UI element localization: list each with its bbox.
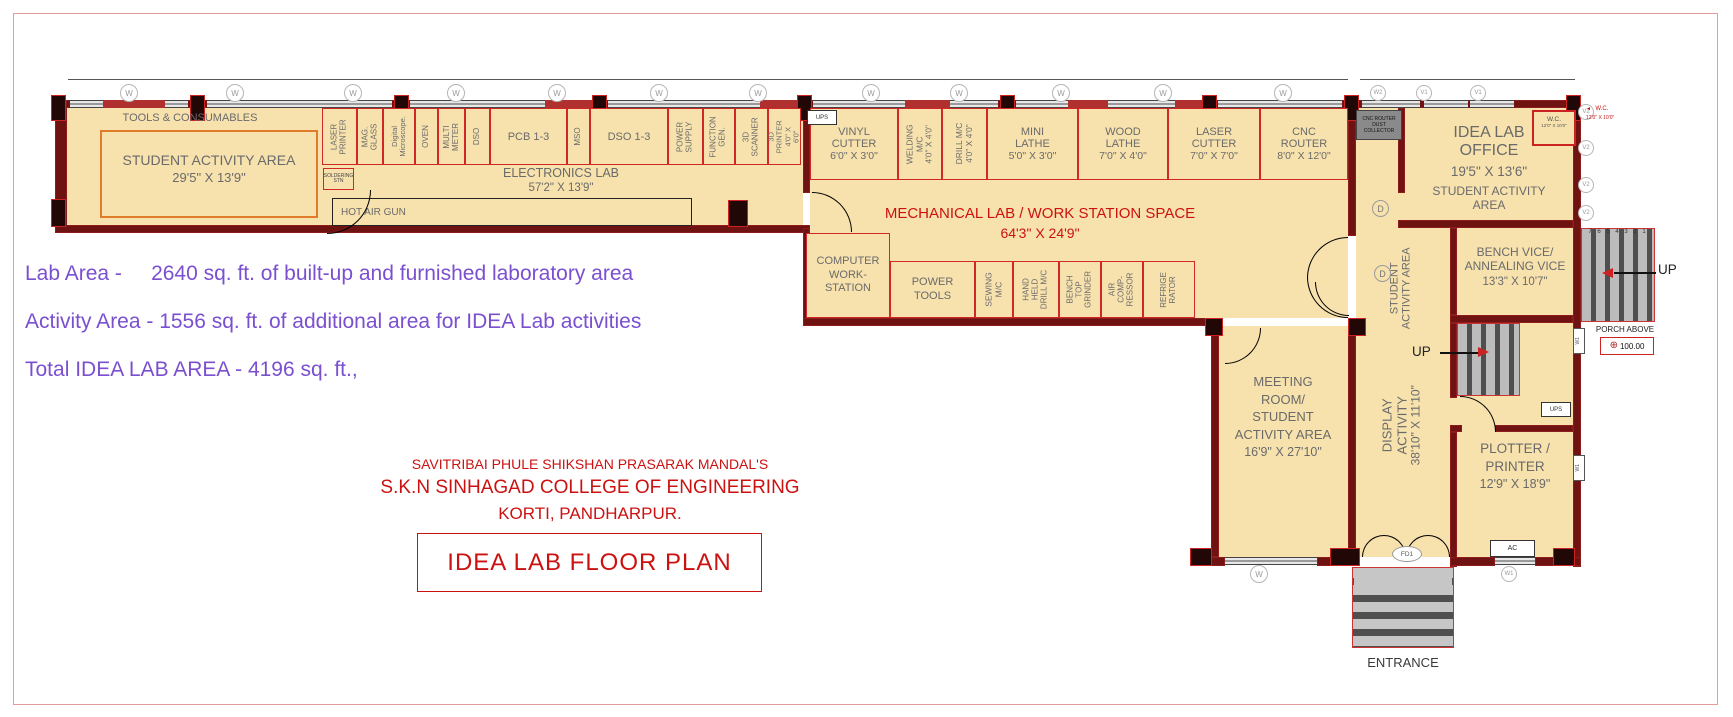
equip-wood-lathe: WOOD LATHE7'0" X 4'0" (1078, 108, 1168, 180)
mechanical-lab-label: MECHANICAL LAB / WORK STATION SPACE 64'3… (845, 205, 1235, 241)
level-compass-icon: ⊕ (1610, 341, 1618, 351)
fd1-door-label: FD1 (1392, 546, 1422, 562)
window-marker: W (120, 84, 138, 102)
porch-above-label: PORCH ABOVE (1586, 325, 1664, 334)
up-arrow-line (1440, 352, 1482, 354)
college-name: S.K.N SINHAGAD COLLEGE OF ENGINEERING (330, 477, 850, 499)
wall-mech-right (1348, 108, 1356, 236)
wc-room: W.C. 12'0" X 10'0" (1532, 110, 1576, 146)
equip-air-compressor: AIR COMP- RESSOR (1101, 261, 1143, 318)
window-sill-bottom-right (1495, 557, 1535, 565)
wall-corridor-right-1 (1450, 228, 1457, 315)
ventilator-marker-v2: V2 (1578, 177, 1594, 193)
ventilator-marker-v1: V1 (1416, 85, 1432, 101)
window-band-line-right (1360, 79, 1575, 80)
soldering-station: SOLDERING STN (323, 168, 354, 190)
door-pillar (51, 199, 66, 227)
up-arrow-icon (1478, 347, 1489, 357)
equip-power-tools: POWER TOOLS (890, 261, 975, 318)
equip-dso: DSO (465, 108, 490, 165)
equip-laser-printer: LASER PRINTER (322, 108, 357, 165)
window-marker: W (1250, 565, 1268, 583)
door-marker-d: D (1372, 200, 1389, 217)
equip-pcb: PCB 1-3 (490, 108, 567, 165)
cnc-dust-collector: CNC ROUTER DUST COLLECTOR (1356, 110, 1402, 140)
upper-stairs (1581, 228, 1655, 322)
equip-cnc-router: CNC ROUTER8'0" X 12'0" (1260, 108, 1348, 180)
window-marker: W (862, 84, 880, 102)
door-pillar (1205, 318, 1223, 336)
middle-stairs (1457, 323, 1520, 396)
equip-power-supply: POWER SUPPLY (668, 108, 703, 165)
window-marker-w2: W2 (1370, 85, 1386, 101)
equip-laser-cutter: LASER CUTTER7'0" X 7'0" (1168, 108, 1260, 180)
equip-refrigerator: REFRIGE RATOR (1143, 261, 1195, 318)
title-block: SAVITRIBAI PHULE SHIKSHAN PRASARAK MANDA… (330, 456, 850, 524)
door-pillar (1330, 548, 1360, 566)
equip-welding-mc: WELDING M/C4'0" X 4'0" (898, 108, 942, 180)
wall-meeting-right (1348, 318, 1356, 557)
equip-3d-printer: 3D PRINTER4'0" X 6'0" (768, 108, 801, 165)
floor-plan-canvas: W W W W W W W W W W W W W2 V1 V1 V2 V2 V… (0, 0, 1733, 717)
entrance-label: ENTRANCE (1352, 655, 1454, 670)
window-marker: W (650, 84, 668, 102)
plan-title: IDEA LAB FLOOR PLAN (447, 549, 731, 577)
equip-dso-1-3: DSO 1-3 (590, 108, 668, 165)
equip-drill-mc: DRILL M/C4'0" X 4'0" (942, 108, 987, 180)
door-marker-d: D (1374, 265, 1391, 282)
total-area-note: Total IDEA LAB AREA - 4196 sq. ft., (25, 358, 641, 382)
lab-area-note: Lab Area - 2640 sq. ft. of built-up and … (25, 262, 641, 286)
wall-office-bottom (1398, 220, 1573, 228)
wall-bottom-c (1450, 557, 1495, 566)
equip-hand-drill: HAND HELD DRILL M/C (1013, 261, 1059, 318)
window-band-line (68, 79, 1348, 80)
activity-area-note: Activity Area - 1556 sq. ft. of addition… (25, 310, 641, 334)
tools-consumables-label: TOOLS & CONSUMABLES (75, 112, 305, 124)
hot-air-gun-bench: HOT AIR GUN (332, 198, 692, 226)
wc-outer-tag: ◄ W.C. 12'0" X 10'0" (1586, 96, 1638, 121)
ac-unit: AC (1490, 540, 1535, 557)
college-city: KORTI, PANDHARPUR. (330, 504, 850, 524)
wall-meeting-left (1211, 318, 1219, 557)
door-pillar (51, 95, 66, 121)
wall-accent (760, 100, 800, 108)
wall-corridor-right-3 (1450, 432, 1457, 567)
stair-numbers: 7 6 5 4 3 2 1 (1583, 229, 1653, 235)
electronics-lab-label: ELECTRONICS LAB 57'2" X 13'9" (322, 166, 800, 194)
display-activity-label: DISPLAY ACTIVITY 38'10" X 11'10" (1360, 358, 1444, 493)
entrance-landing (1354, 568, 1452, 592)
door-pillar (728, 200, 748, 227)
equip-mag-glass: MAG. GLASS (357, 108, 383, 165)
up-label: UP (1412, 344, 1431, 359)
level-marker: ⊕ 100.00 (1600, 337, 1654, 355)
corridor-student-activity-label: STUDENT ACTIVITY AREA (1356, 238, 1446, 338)
up-label: UP (1658, 262, 1677, 277)
wall-accent (1068, 100, 1108, 108)
window-sill (1016, 100, 1200, 108)
equip-3d-scanner: 3D SCANNER (735, 108, 768, 165)
window-marker-w1: W1 (1501, 566, 1517, 582)
equip-mso: MSO (567, 108, 590, 165)
equip-bench-grinder: BENCH TOP GRINDER (1059, 261, 1101, 318)
window-sill-bottom (1225, 557, 1317, 565)
window-tag-w1: W1 (1573, 455, 1585, 481)
equip-function-gen: FUNCTION GEN. (703, 108, 735, 165)
org-name: SAVITRIBAI PHULE SHIKSHAN PRASARAK MANDA… (330, 456, 850, 472)
equip-computer-workstation: COMPUTER WORK- STATION (806, 233, 890, 318)
window-marker: W (1274, 84, 1292, 102)
plan-title-box: IDEA LAB FLOOR PLAN (417, 533, 762, 592)
window-sill (1362, 100, 1420, 108)
window-marker: W (226, 84, 244, 102)
meeting-room-label: MEETING ROOM/ STUDENT ACTIVITY AREA 16'9… (1233, 373, 1333, 459)
equip-multi-meter: MULTI METER (438, 108, 465, 165)
ventilator-marker-v2: V2 (1578, 205, 1594, 221)
window-sill (1424, 100, 1468, 108)
door-pillar (1553, 548, 1575, 566)
bench-vice-label: BENCH VICE/ ANNEALING VICE 13'3" X 10'7" (1460, 245, 1570, 288)
equip-digital-microscope: Digital Microscope. (383, 108, 415, 165)
up-arrow-icon (1602, 268, 1613, 278)
window-marker: W (548, 84, 566, 102)
equip-sewing-mc: SEWING M/C (975, 261, 1013, 318)
wall-accent (905, 100, 950, 108)
door-pillar (1190, 548, 1212, 566)
window-marker: W (344, 84, 362, 102)
area-notes: Lab Area - 2640 sq. ft. of built-up and … (25, 262, 641, 406)
wall-plotter-top (1495, 425, 1573, 432)
window-sill (1470, 100, 1514, 108)
wall-corridor-right-2 (1450, 323, 1457, 398)
ventilator-marker-v2: V2 (1578, 140, 1594, 156)
equip-mini-lathe: MINI LATHE5'0" X 3'0" (987, 108, 1078, 180)
wall-mech-bottom (803, 318, 1218, 326)
plotter-printer-label: PLOTTER / PRINTER 12'9" X 18'9" (1460, 440, 1570, 491)
window-marker: W (1154, 84, 1172, 102)
window-tag-w1: W1 (1573, 328, 1585, 354)
wall-bench-bottom (1450, 315, 1573, 323)
window-marker: W (1052, 84, 1070, 102)
window-marker: W (950, 84, 968, 102)
equip-oven: OVEN (415, 108, 438, 165)
ups-box: UPS (1541, 402, 1571, 417)
student-activity-nw-label: STUDENT ACTIVITY AREA 29'5" X 13'9" (100, 152, 318, 185)
window-marker: W (447, 84, 465, 102)
ups-box: UPS (807, 110, 837, 125)
window-marker: W (749, 84, 767, 102)
wall-accent (103, 100, 165, 108)
ventilator-marker-v1: V1 (1470, 85, 1486, 101)
wc-arrow-icon: ◄ (1586, 106, 1591, 112)
up-arrow-line (1614, 272, 1656, 274)
wall-left-wing-bottom (55, 225, 810, 233)
